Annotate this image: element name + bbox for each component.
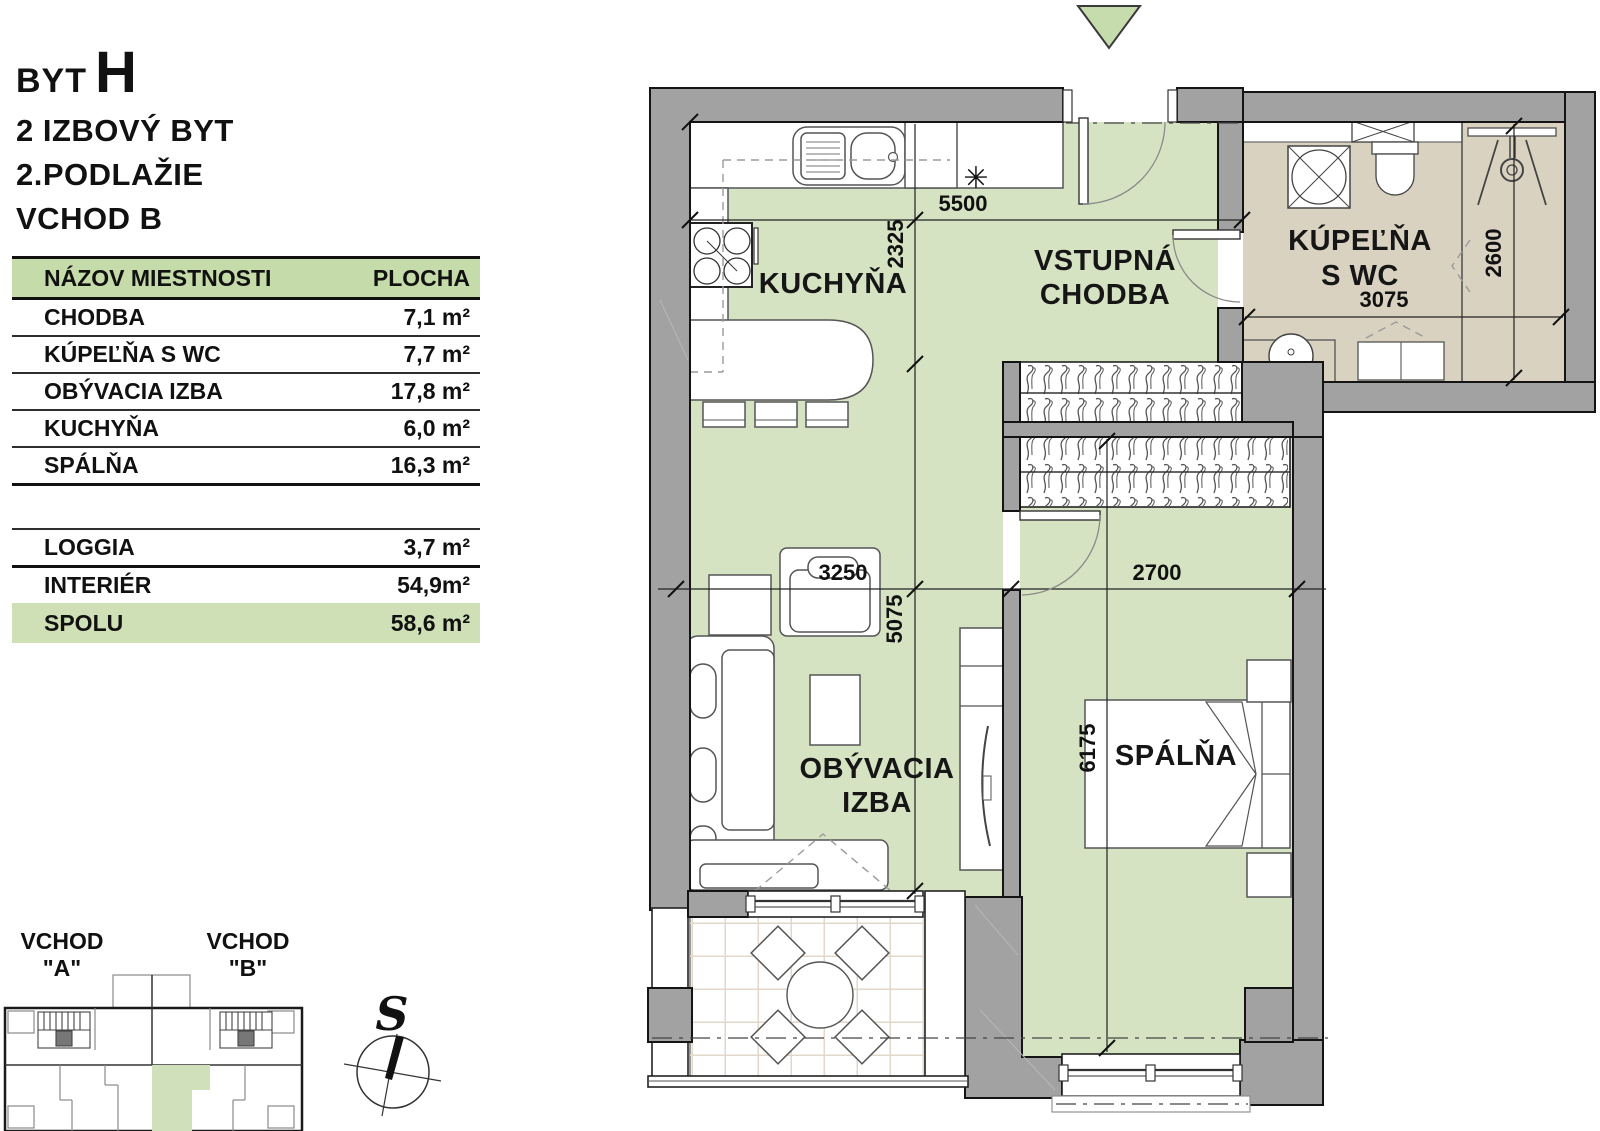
vent-shelf: [1352, 121, 1414, 142]
dim-top-width: 5500: [939, 191, 988, 216]
coffee-table: [810, 675, 860, 745]
floorplan-sheet: BYTH 2 IZBOVÝ BYT 2.PODLAŽIE VCHOD B NÁZ…: [0, 0, 1600, 1131]
room-label-bath-1: KÚPEĽŇA: [1288, 223, 1432, 257]
room-label-kitchen: KUCHYŇA: [759, 266, 908, 300]
dim-bath-height: 2600: [1481, 229, 1506, 278]
floor-plan: ✳: [0, 0, 1600, 1131]
room-label-living-2: IZBA: [842, 787, 912, 819]
toilet: [1372, 142, 1418, 195]
living-bedroom-wall-lower: [1003, 590, 1020, 900]
nightstand: [1247, 853, 1291, 897]
stove: [690, 223, 758, 287]
kitchen-island: [690, 320, 873, 400]
fridge: [905, 122, 957, 188]
bedroom-window: [1052, 1054, 1250, 1112]
dim-bedroom-width: 2700: [1133, 560, 1182, 585]
room-label-bath-2: S WC: [1321, 260, 1399, 292]
living-loggia-window: [746, 891, 924, 917]
top-wall-right: [1177, 88, 1243, 122]
window-left-pier: [688, 891, 748, 917]
bedroom-wardrobe: [1020, 437, 1290, 507]
hall-bath-wall-upper: [1218, 122, 1243, 232]
loggia-left-pillar: [648, 988, 692, 1042]
washing-machine: [1288, 146, 1350, 208]
bedroom-wall-step: [1245, 988, 1293, 1042]
room-label-hall-2: CHODBA: [1040, 279, 1170, 311]
right-wall: [1293, 437, 1323, 1105]
loggia-railing: [648, 1076, 968, 1087]
loggia-right-wall: [925, 891, 965, 1081]
bathroom-right-wall: [1565, 92, 1595, 412]
kitchen-sink: [793, 127, 905, 185]
dim-kitchen-depth: 2325: [883, 220, 908, 269]
armchair-square: [709, 575, 771, 635]
room-label-hall-1: VSTUPNÁ: [1034, 243, 1176, 277]
bottom-right-wall: [1240, 1040, 1323, 1105]
hall-bath-wall-lower: [1218, 308, 1243, 362]
bathroom-top-wall: [1243, 92, 1595, 122]
room-label-living-1: OBÝVACIA: [800, 751, 955, 785]
dim-living-width: 3250: [819, 560, 868, 585]
bed: [1085, 700, 1290, 848]
tv-unit: [960, 628, 1003, 870]
hall-bedroom-wall: [1003, 422, 1293, 437]
entrance-door-jambs: [1063, 90, 1177, 122]
loggia-table: [787, 962, 853, 1028]
room-label-bedroom: SPÁLŇA: [1115, 738, 1237, 772]
dim-living-height: 5075: [882, 595, 907, 644]
bar-stools: [703, 402, 848, 427]
dim-bedroom-height: 6175: [1075, 724, 1100, 773]
hall-wardrobe: [1020, 362, 1242, 422]
entrance-marker-icon: [1078, 6, 1140, 48]
nightstand: [1247, 660, 1291, 702]
